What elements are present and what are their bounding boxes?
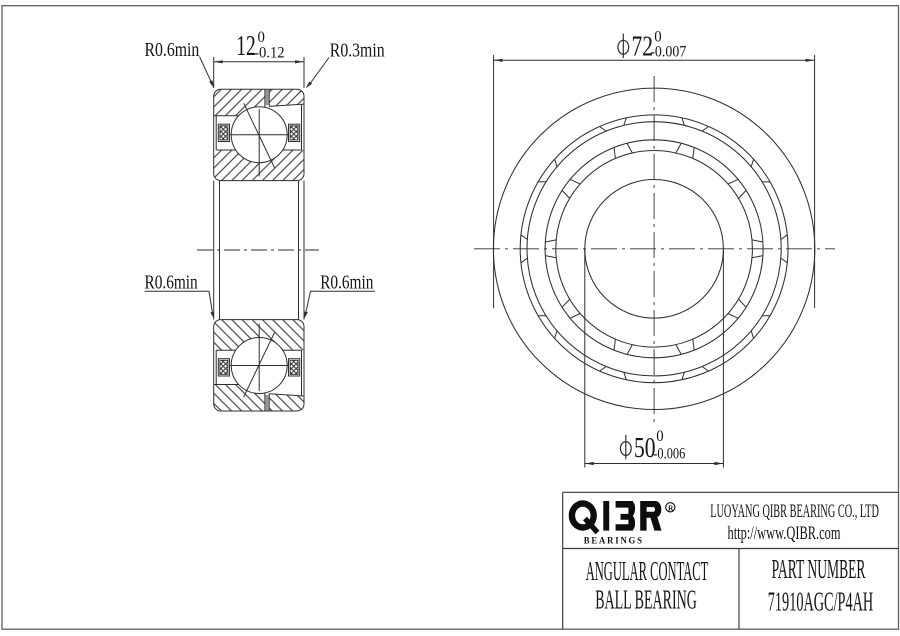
svg-text:-0.12: -0.12 [254, 45, 285, 62]
svg-text:50: 50 [634, 433, 656, 464]
svg-text:0: 0 [656, 428, 664, 445]
svg-text:PART NUMBER: PART NUMBER [772, 553, 866, 584]
svg-text:71910AGC/P4AH: 71910AGC/P4AH [768, 586, 873, 617]
svg-text:BEARINGS: BEARINGS [584, 537, 644, 547]
svg-text:R0.3min: R0.3min [330, 39, 385, 61]
svg-text:12: 12 [236, 31, 256, 62]
svg-text:-0.007: -0.007 [650, 43, 686, 60]
svg-text:LUOYANG QIBR BEARING CO., LTD: LUOYANG QIBR BEARING CO., LTD [710, 502, 879, 522]
svg-text:R0.6min: R0.6min [145, 271, 198, 293]
svg-text:-0.006: -0.006 [653, 446, 685, 463]
svg-text:R0.6min: R0.6min [320, 271, 373, 293]
svg-text:http://www.QIBR.com: http://www.QIBR.com [728, 524, 841, 544]
svg-text:BALL BEARING: BALL BEARING [595, 584, 697, 615]
svg-text:ANGULAR CONTACT: ANGULAR CONTACT [586, 555, 709, 586]
svg-text:0: 0 [258, 29, 266, 46]
svg-text:R: R [668, 504, 674, 513]
svg-text:R0.6min: R0.6min [145, 39, 200, 61]
